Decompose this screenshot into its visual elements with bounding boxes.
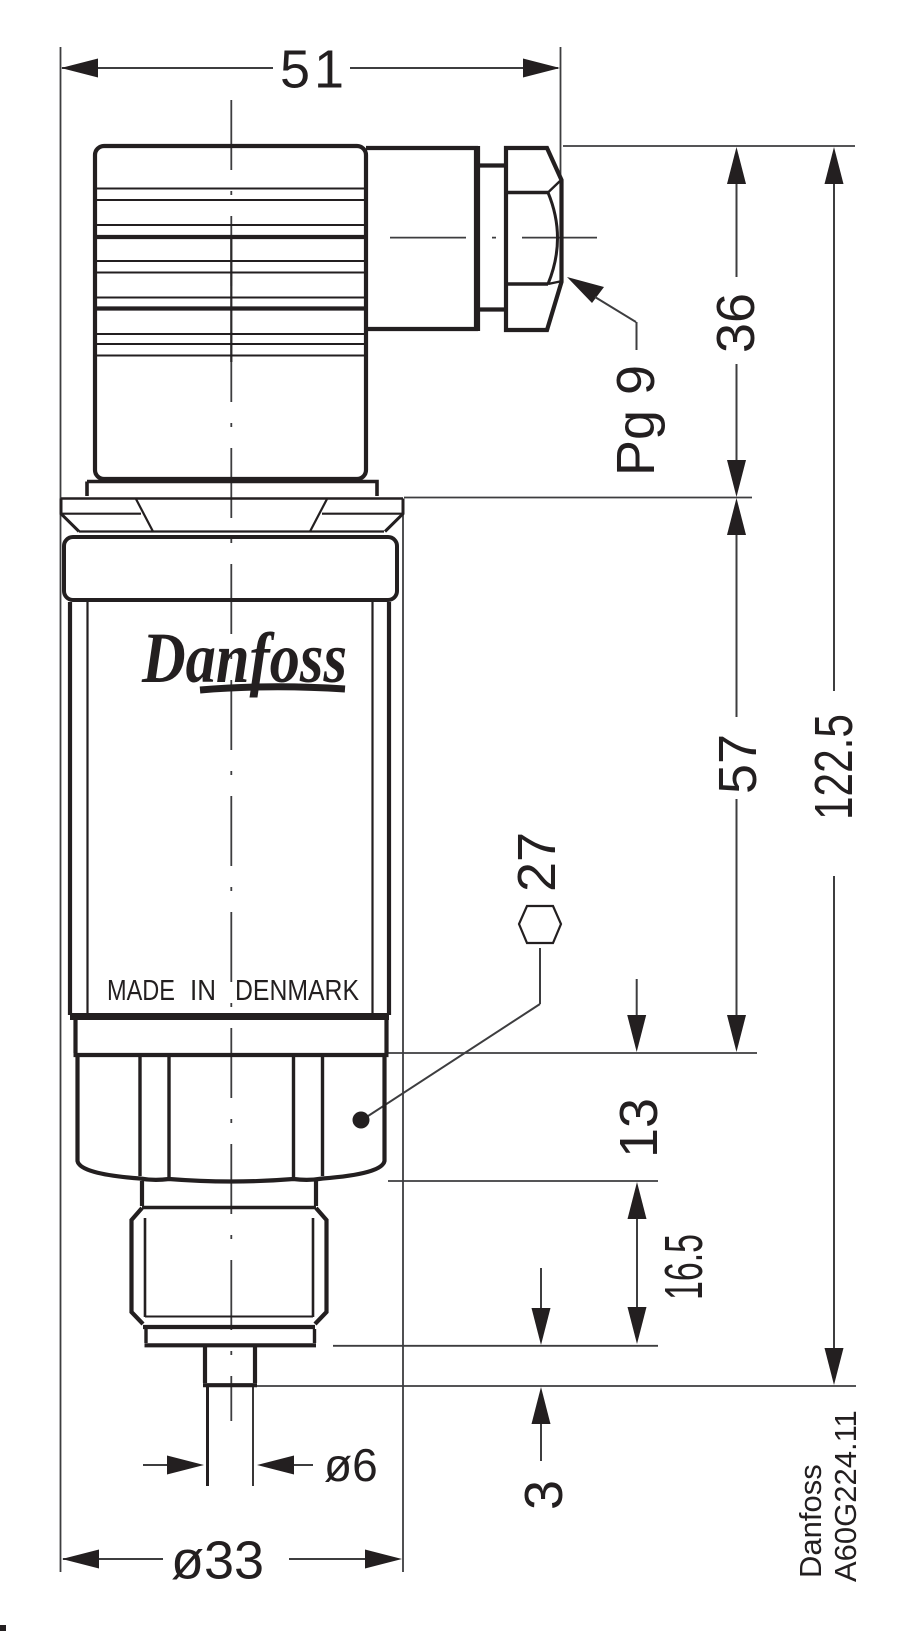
svg-text:MADE: MADE (107, 975, 175, 1007)
svg-text:A60G224.11: A60G224.11 (828, 1410, 863, 1582)
svg-text:ø33: ø33 (171, 1531, 264, 1591)
svg-text:3: 3 (514, 1480, 574, 1510)
svg-text:16.5: 16.5 (654, 1234, 714, 1300)
svg-text:DENMARK: DENMARK (235, 975, 360, 1007)
svg-text:Danfoss: Danfoss (793, 1464, 828, 1578)
svg-text:IN: IN (190, 975, 216, 1007)
svg-text:51: 51 (280, 40, 348, 100)
svg-text:36: 36 (706, 293, 766, 353)
svg-text:ø6: ø6 (324, 1439, 378, 1491)
svg-text:27: 27 (507, 832, 567, 892)
svg-text:13: 13 (609, 1098, 669, 1158)
svg-text:Pg 9: Pg 9 (606, 365, 666, 476)
svg-text:57: 57 (708, 734, 768, 794)
svg-text:122.5: 122.5 (804, 714, 864, 820)
